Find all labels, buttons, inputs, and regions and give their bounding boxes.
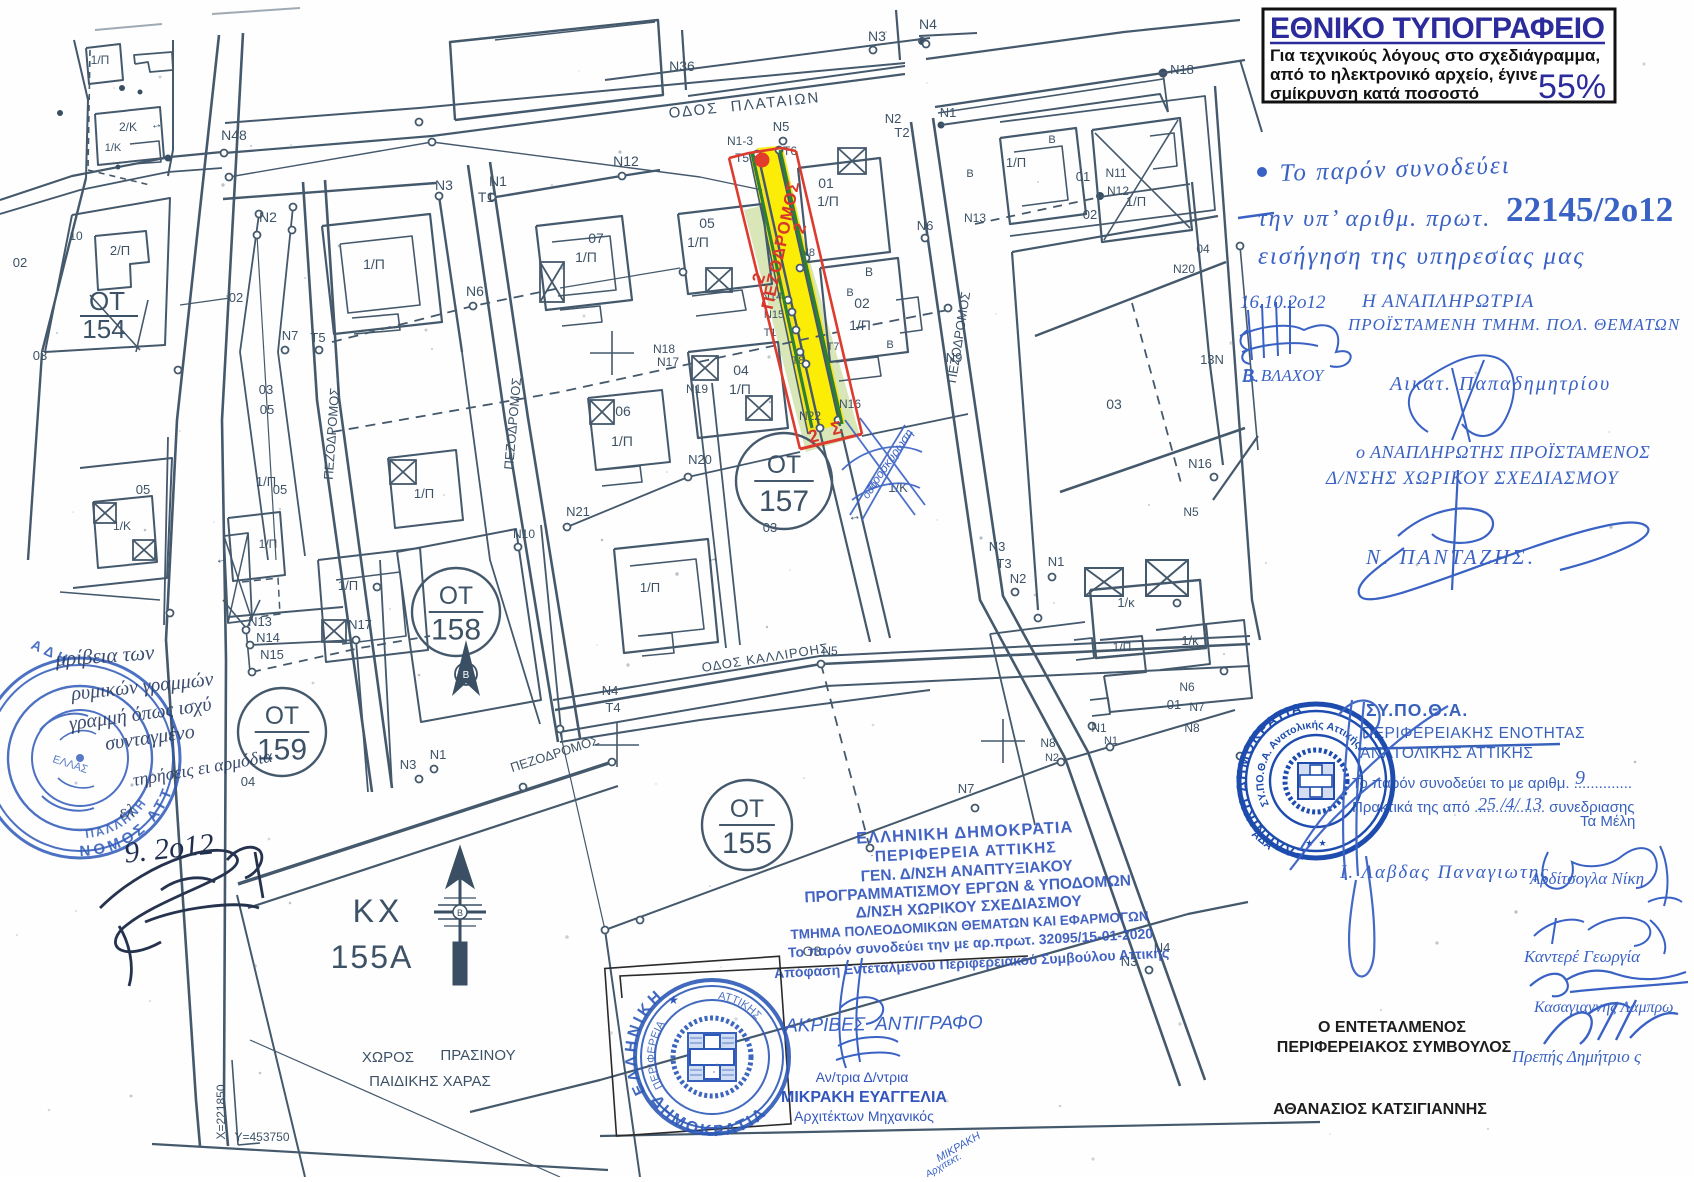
svg-text:N3: N3 <box>868 28 886 44</box>
svg-text:1/Π: 1/Π <box>414 486 434 501</box>
svg-text:05: 05 <box>699 215 715 231</box>
svg-text:Για τεχνικούς λόγους στο σχεδι: Για τεχνικούς λόγους στο σχεδιάγραμμα, <box>1270 46 1600 65</box>
svg-text:↔: ↔ <box>214 550 229 567</box>
svg-text:Τ5: Τ5 <box>310 330 325 345</box>
svg-text:N48: N48 <box>221 127 247 143</box>
svg-text:Ν7: Ν7 <box>1189 700 1205 714</box>
svg-text:ΠΕΡΙΦΕΡΕΙΑΚΟΣ ΣΥΜΒΟΥΛΟΣ: ΠΕΡΙΦΕΡΕΙΑΚΟΣ ΣΥΜΒΟΥΛΟΣ <box>1277 1039 1512 1056</box>
svg-text:N7: N7 <box>282 328 299 343</box>
svg-text:N1-3: N1-3 <box>727 134 753 148</box>
svg-text:1/Κ: 1/Κ <box>105 142 122 154</box>
svg-text:10: 10 <box>69 229 83 243</box>
svg-text:↔: ↔ <box>847 507 862 524</box>
svg-text:01: 01 <box>1167 697 1181 712</box>
svg-text:02: 02 <box>229 290 243 305</box>
svg-text:2/Π: 2/Π <box>110 243 130 258</box>
svg-text:Ν8: Ν8 <box>1184 721 1200 735</box>
svg-text:25 /4/ 13: 25 /4/ 13 <box>1478 794 1542 814</box>
svg-text:Κασαγιαννης Λάμπρω: Κασαγιαννης Λάμπρω <box>1533 999 1673 1016</box>
svg-text:1/Π: 1/Π <box>729 381 751 397</box>
svg-text:Ν10: Ν10 <box>513 527 535 541</box>
svg-text:N2: N2 <box>259 209 277 225</box>
svg-text:ΕΘΝΙΚΟ ΤΥΠΟΓΡΑΦΕΙΟ: ΕΘΝΙΚΟ ΤΥΠΟΓΡΑΦΕΙΟ <box>1270 12 1605 45</box>
svg-text:από το ηλεκτρονικό αρχείο, έγι: από το ηλεκτρονικό αρχείο, έγινε <box>1270 65 1538 84</box>
svg-text:ΠΡΑΣΙΝΟΥ: ΠΡΑΣΙΝΟΥ <box>440 1047 515 1064</box>
svg-text:Β: Β <box>865 265 873 279</box>
svg-text:01: 01 <box>1076 169 1090 184</box>
svg-text:22145/2ο12: 22145/2ο12 <box>1506 190 1673 229</box>
svg-text:Ν17: Ν17 <box>348 617 372 632</box>
svg-text:04: 04 <box>1196 242 1210 256</box>
svg-text:Ν6: Ν6 <box>1179 680 1195 694</box>
svg-text:Αρχιτέκτων Μηχανικός: Αρχιτέκτων Μηχανικός <box>794 1108 934 1124</box>
svg-text:N6: N6 <box>466 283 484 299</box>
svg-text:Ο3: Ο3 <box>803 943 822 959</box>
svg-text:Ν7: Ν7 <box>958 781 975 796</box>
svg-text:1/Π: 1/Π <box>611 433 633 449</box>
svg-text:ΧΩΡΟΣ: ΧΩΡΟΣ <box>362 1049 414 1066</box>
svg-text:02: 02 <box>1083 207 1097 222</box>
svg-text:9: 9 <box>1575 767 1585 789</box>
svg-text:1/Π: 1/Π <box>575 249 597 265</box>
svg-text:N2: N2 <box>885 111 902 126</box>
svg-text:1/Π: 1/Π <box>91 53 110 67</box>
svg-text:1/κ: 1/κ <box>1181 633 1199 648</box>
svg-text:Β: Β <box>1048 134 1055 146</box>
svg-text:ΑΘΑΝΑΣΙΟΣ ΚΑΤΣΙΓΙΑΝΝΗΣ: ΑΘΑΝΑΣΙΟΣ ΚΑΤΣΙΓΙΑΝΝΗΣ <box>1273 1101 1487 1118</box>
svg-text:N1: N1 <box>489 173 507 189</box>
svg-text:13Ν: 13Ν <box>1200 352 1224 367</box>
svg-text:Αν/τρια Δ/ντρια: Αν/τρια Δ/ντρια <box>816 1069 909 1085</box>
svg-text:01: 01 <box>818 175 834 191</box>
svg-text:2/Κ: 2/Κ <box>119 120 137 134</box>
svg-text:Ν1: Ν1 <box>1104 735 1118 747</box>
svg-text:07: 07 <box>588 230 604 246</box>
svg-text:03: 03 <box>259 382 273 397</box>
svg-text:1/Π: 1/Π <box>817 193 839 209</box>
svg-text:Ν17: Ν17 <box>657 355 679 369</box>
svg-text:Καντερέ Γεωργία: Καντερέ Γεωργία <box>1523 947 1641 966</box>
svg-text:05: 05 <box>136 482 150 497</box>
svg-text:03: 03 <box>33 348 47 363</box>
svg-text:ΠΑΙΔΙΚΗΣ ΧΑΡΑΣ: ΠΑΙΔΙΚΗΣ ΧΑΡΑΣ <box>369 1073 491 1090</box>
svg-text:Ν5: Ν5 <box>1183 505 1199 519</box>
svg-text:1/Π: 1/Π <box>687 234 709 250</box>
svg-text:ΜΙΚΡΑΚΗ ΕΥΑΓΓΕΛΙΑ: ΜΙΚΡΑΚΗ ΕΥΑΓΓΕΛΙΑ <box>781 1089 947 1106</box>
svg-text:ΚΧ: ΚΧ <box>353 893 404 929</box>
svg-text:154: 154 <box>82 314 125 344</box>
svg-text:↔: ↔ <box>150 116 164 132</box>
svg-text:Ν19: Ν19 <box>686 382 708 396</box>
svg-text:Ν2: Ν2 <box>1010 571 1027 586</box>
svg-text:Ν16: Ν16 <box>1188 456 1212 471</box>
svg-text:N4: N4 <box>919 16 937 32</box>
svg-text:155: 155 <box>722 827 772 860</box>
svg-text:1/Π: 1/Π <box>849 317 871 333</box>
svg-text:55%: 55% <box>1538 68 1606 106</box>
svg-text:Ν18: Ν18 <box>1170 62 1194 77</box>
svg-text:1/Π: 1/Π <box>338 578 358 593</box>
svg-text:Β.: Β. <box>1242 365 1259 387</box>
svg-text:Πρεπής Δημήτριο ς: Πρεπής Δημήτριο ς <box>1511 1047 1641 1066</box>
svg-text:ΟΤ: ΟΤ <box>265 703 299 730</box>
svg-text:Ν3: Ν3 <box>989 539 1006 554</box>
svg-text:155Α: 155Α <box>331 939 414 975</box>
svg-text:ΑΚΡΙΒΕΣ ΑΝΤΙΓΡΑΦΟ: ΑΚΡΙΒΕΣ ΑΝΤΙΓΡΑΦΟ <box>784 1012 983 1036</box>
svg-text:158: 158 <box>431 613 481 646</box>
svg-text:Ν13: Ν13 <box>248 614 272 629</box>
svg-text:1/Π: 1/Π <box>256 474 276 489</box>
svg-text:την υπ’ αριθμ. πρωτ.: την υπ’ αριθμ. πρωτ. <box>1258 206 1491 232</box>
svg-text:Ν20: Ν20 <box>1173 262 1195 276</box>
svg-text:↔: ↔ <box>705 549 720 566</box>
svg-text:Τ4: Τ4 <box>605 700 620 715</box>
svg-text:Ν3: Ν3 <box>400 757 417 772</box>
svg-text:04: 04 <box>241 774 255 789</box>
svg-text:Ν1: Ν1 <box>1048 554 1065 569</box>
svg-text:Β: Β <box>886 339 893 351</box>
svg-text:Ν1: Ν1 <box>940 105 957 120</box>
svg-text:1/Π: 1/Π <box>640 580 660 595</box>
svg-text:Ν2: Ν2 <box>1045 752 1059 764</box>
svg-text:06: 06 <box>615 403 631 419</box>
svg-text:N12: N12 <box>613 153 639 169</box>
svg-text:Ν18: Ν18 <box>653 342 675 356</box>
svg-text:σμίκρυνση κατά ποσοστό: σμίκρυνση κατά ποσοστό <box>1270 84 1479 103</box>
svg-text:ελ: ελ <box>118 800 136 822</box>
svg-text:1/κ: 1/κ <box>1117 595 1135 610</box>
svg-text:Αρδίτσογλα Νίκη: Αρδίτσογλα Νίκη <box>1529 869 1644 888</box>
svg-text:εισήγηση της υπηρεσίας μας: εισήγηση της υπηρεσίας μας <box>1258 243 1585 270</box>
svg-text:Β: Β <box>457 908 463 918</box>
svg-text:Ν20: Ν20 <box>688 452 712 467</box>
svg-text:ΟΤ: ΟΤ <box>767 452 801 479</box>
svg-text:Τα Μέλη: Τα Μέλη <box>1580 813 1635 830</box>
svg-text:Ν13: Ν13 <box>964 211 986 225</box>
svg-text:02: 02 <box>13 255 27 270</box>
svg-text:Ν16: Ν16 <box>839 397 861 411</box>
svg-text:Η ΑΝΑΠΛΗΡΩΤΡΙΑ: Η ΑΝΑΠΛΗΡΩΤΡΙΑ <box>1361 291 1534 312</box>
svg-text:ο ΑΝΑΠΛΗΡΩΤΗΣ ΠΡΟΪΣΤΑΜΕΝΟΣ: ο ΑΝΑΠΛΗΡΩΤΗΣ ΠΡΟΪΣΤΑΜΕΝΟΣ <box>1356 442 1650 462</box>
svg-text:1/Π: 1/Π <box>1113 640 1132 654</box>
svg-text:Ν21: Ν21 <box>566 504 590 519</box>
svg-text:Β: Β <box>966 168 973 180</box>
svg-text:Ν14: Ν14 <box>256 630 280 645</box>
svg-text:Ν8: Ν8 <box>1040 736 1056 750</box>
svg-text:Ν12: Ν12 <box>1107 184 1129 198</box>
svg-text:Ι. Λαβδας Παναγιωτης: Ι. Λαβδας Παναγιωτης <box>1339 862 1550 883</box>
svg-text:T1: T1 <box>478 189 495 205</box>
svg-text:ΠΕΡΙΦΕΡΕΙΑΚΗΣ ΕΝΟΤΗΤΑΣ: ΠΕΡΙΦΕΡΕΙΑΚΗΣ ΕΝΟΤΗΤΑΣ <box>1362 725 1585 742</box>
svg-text:Β: Β <box>846 287 853 299</box>
svg-text:1/Κ: 1/Κ <box>113 519 131 533</box>
svg-text:ΠΡΟΪΣΤΑΜΕΝΗ ΤΜΗΜ. ΠΟΛ. ΘΕΜΑΤΩΝ: ΠΡΟΪΣΤΑΜΕΝΗ ΤΜΗΜ. ΠΟΛ. ΘΕΜΑΤΩΝ <box>1347 315 1681 334</box>
svg-text:Ν15: Ν15 <box>260 647 284 662</box>
svg-text:157: 157 <box>759 485 809 518</box>
svg-text:1/Π: 1/Π <box>363 256 385 272</box>
svg-text:Ν4: Ν4 <box>602 683 619 698</box>
svg-text:Ν1: Ν1 <box>1091 721 1107 735</box>
svg-text:03: 03 <box>1106 396 1122 412</box>
svg-text:1/Π: 1/Π <box>259 537 278 551</box>
svg-text:Τ7: Τ7 <box>827 341 840 353</box>
svg-text:Υ=453750: Υ=453750 <box>234 1130 289 1144</box>
svg-text:Ν6: Ν6 <box>917 218 934 233</box>
svg-text:Χ=221850: Χ=221850 <box>214 1084 228 1139</box>
svg-text:Ν1: Ν1 <box>430 747 447 762</box>
svg-text:ΟΤ: ΟΤ <box>89 286 125 316</box>
svg-text:N3: N3 <box>435 177 453 193</box>
svg-text:04: 04 <box>733 362 749 378</box>
svg-text:05: 05 <box>260 402 274 417</box>
svg-text:★: ★ <box>668 993 679 1007</box>
svg-text:Τ3: Τ3 <box>996 556 1011 571</box>
svg-text:Ο ΕΝΤΕΤΑΛΜΕΝΟΣ: Ο ΕΝΤΕΤΑΛΜΕΝΟΣ <box>1318 1019 1466 1036</box>
svg-text:N36: N36 <box>669 58 695 74</box>
svg-text:ΟΤ: ΟΤ <box>439 583 473 610</box>
svg-text:Β: Β <box>463 670 470 681</box>
svg-text:16.10.2ο12: 16.10.2ο12 <box>1240 292 1326 313</box>
svg-text:ΣΥ.ΠΟ.Θ.Α.: ΣΥ.ΠΟ.Θ.Α. <box>1366 700 1468 720</box>
svg-text:Αικατ. Παπαδημητρίου: Αικατ. Παπαδημητρίου <box>1388 373 1611 395</box>
svg-text:ΟΤ: ΟΤ <box>730 796 764 823</box>
svg-text:02: 02 <box>854 295 870 311</box>
svg-text:T2: T2 <box>894 125 909 140</box>
svg-text:1/Π: 1/Π <box>1006 155 1026 170</box>
svg-text:Ν11: Ν11 <box>1105 166 1126 180</box>
svg-text:Δ/ΝΣΗΣ ΧΩΡΙΚΟΥ ΣΧΕΔΙΑΣΜΟΥ: Δ/ΝΣΗΣ ΧΩΡΙΚΟΥ ΣΧΕΔΙΑΣΜΟΥ <box>1325 468 1620 489</box>
svg-text:N5: N5 <box>773 119 790 134</box>
